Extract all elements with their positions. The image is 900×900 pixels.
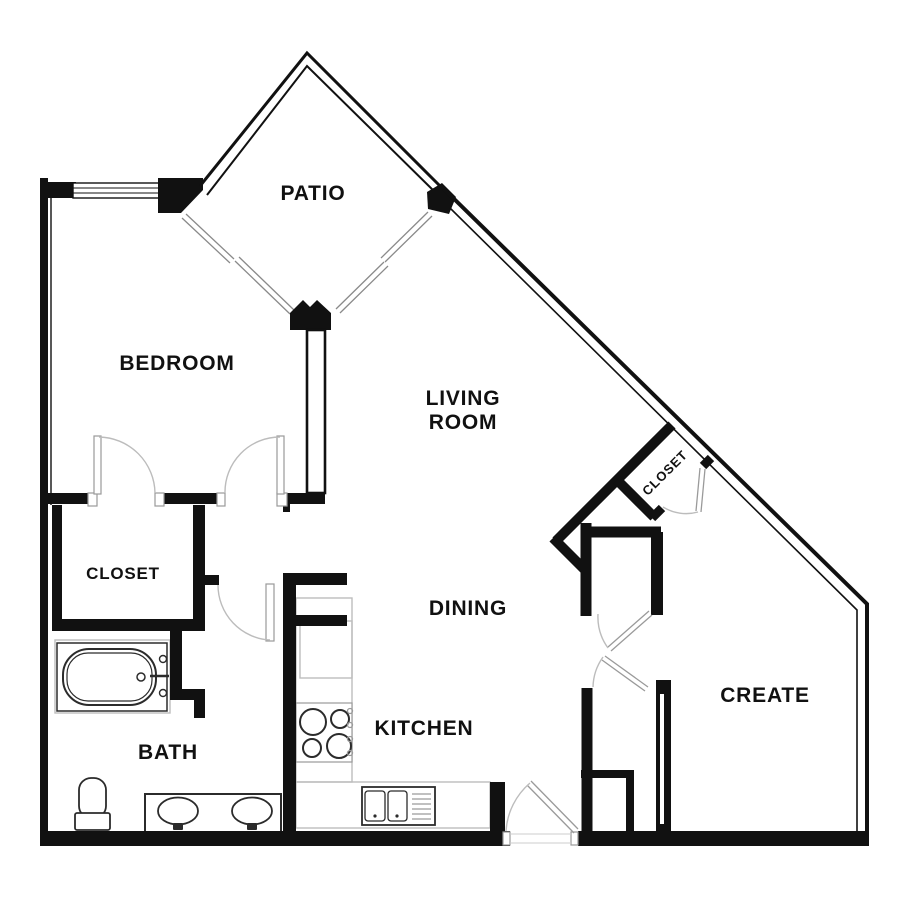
bedroom-door-arc (225, 437, 280, 493)
bedroom-window-icon (73, 183, 161, 198)
entry-door-arc (506, 783, 530, 831)
kitchen-sink-icon (362, 787, 435, 825)
patio-window-right-icon (336, 212, 432, 313)
room-label-create: CREATE (720, 684, 810, 707)
room-label-kitchen: KITCHEN (375, 717, 474, 740)
room-label-bedroom: BEDROOM (119, 352, 234, 375)
double-vanity-icon (145, 794, 281, 831)
refrigerator-icon (300, 621, 352, 678)
room-label-living-line1: LIVING (426, 387, 501, 410)
kitchen-fixtures (296, 598, 490, 828)
lower-nook-door-arc (593, 657, 603, 687)
floor-plan-canvas: PATIO BEDROOM LIVING ROOM CLOSET CLOSET … (0, 0, 900, 900)
room-label-dining: DINING (429, 597, 507, 620)
bath-fixtures (55, 640, 281, 831)
entry-closet-door-arc (663, 507, 698, 514)
range-stove-icon (296, 703, 353, 762)
toilet-icon (75, 778, 110, 830)
bathtub-icon (57, 643, 169, 711)
room-label-patio: PATIO (280, 182, 345, 205)
closet-door-leaf (94, 436, 101, 494)
bedroom-door-leaf (277, 436, 284, 494)
bath-door-leaf (266, 584, 274, 641)
room-label-living-line2: ROOM (429, 411, 498, 434)
room-label-bedroom-closet: CLOSET (86, 564, 160, 583)
upper-nook-door-leaf (608, 611, 652, 651)
room-labels: PATIO BEDROOM LIVING ROOM CLOSET CLOSET … (86, 182, 810, 764)
lower-nook-door-leaf (602, 656, 648, 691)
patio-window-left-icon (182, 214, 294, 314)
entry-closet-door-leaf (696, 468, 705, 512)
upper-nook-door-arc (598, 614, 608, 648)
entry-door-leaf (527, 781, 578, 833)
windows (182, 212, 432, 314)
bedroom-living-wall (307, 330, 325, 493)
bath-door-arc (218, 585, 270, 640)
closet-door-arc (99, 437, 155, 493)
room-label-bath: BATH (138, 741, 198, 764)
